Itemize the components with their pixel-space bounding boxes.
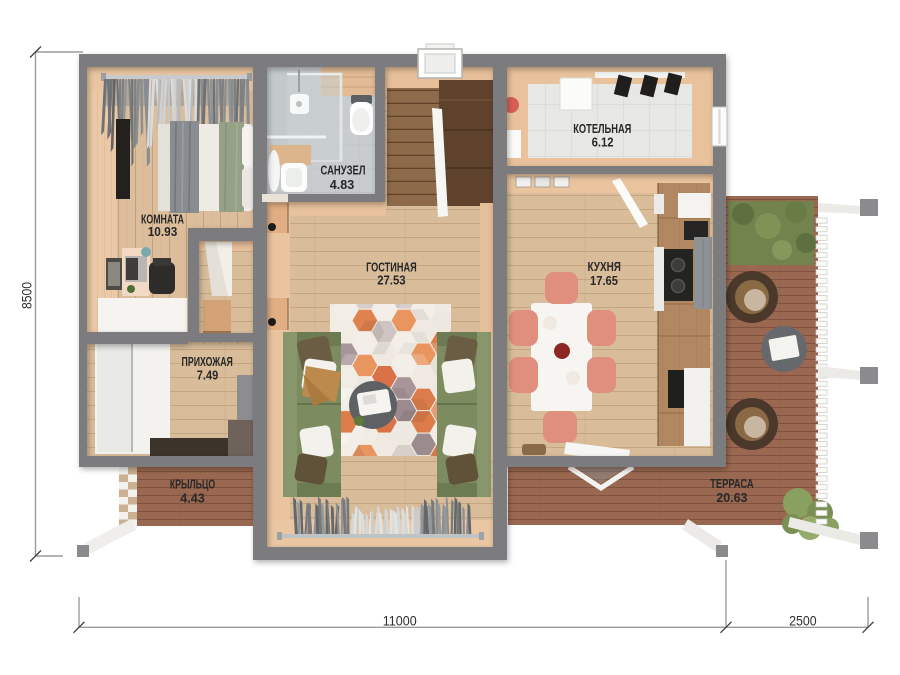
svg-text:6.12: 6.12 xyxy=(592,135,614,149)
svg-text:САНУЗЕЛ: САНУЗЕЛ xyxy=(321,164,366,178)
svg-text:17.65: 17.65 xyxy=(590,274,618,288)
svg-text:8500: 8500 xyxy=(19,282,35,309)
svg-text:2500: 2500 xyxy=(789,613,817,629)
svg-text:ПРИХОЖАЯ: ПРИХОЖАЯ xyxy=(182,355,233,369)
svg-text:КОТЕЛЬНАЯ: КОТЕЛЬНАЯ xyxy=(573,122,631,136)
svg-text:ГОСТИНАЯ: ГОСТИНАЯ xyxy=(366,260,417,274)
svg-text:ТЕРРАСА: ТЕРРАСА xyxy=(710,477,754,491)
svg-text:4.43: 4.43 xyxy=(180,492,205,506)
svg-text:КУХНЯ: КУХНЯ xyxy=(587,260,621,274)
svg-text:10.93: 10.93 xyxy=(148,225,178,239)
svg-text:4.83: 4.83 xyxy=(330,178,355,192)
svg-text:20.63: 20.63 xyxy=(716,491,747,505)
svg-text:КРЫЛЬЦО: КРЫЛЬЦО xyxy=(170,477,215,491)
svg-text:7.49: 7.49 xyxy=(197,369,218,383)
svg-text:27.53: 27.53 xyxy=(377,274,405,288)
svg-text:11000: 11000 xyxy=(383,613,417,629)
